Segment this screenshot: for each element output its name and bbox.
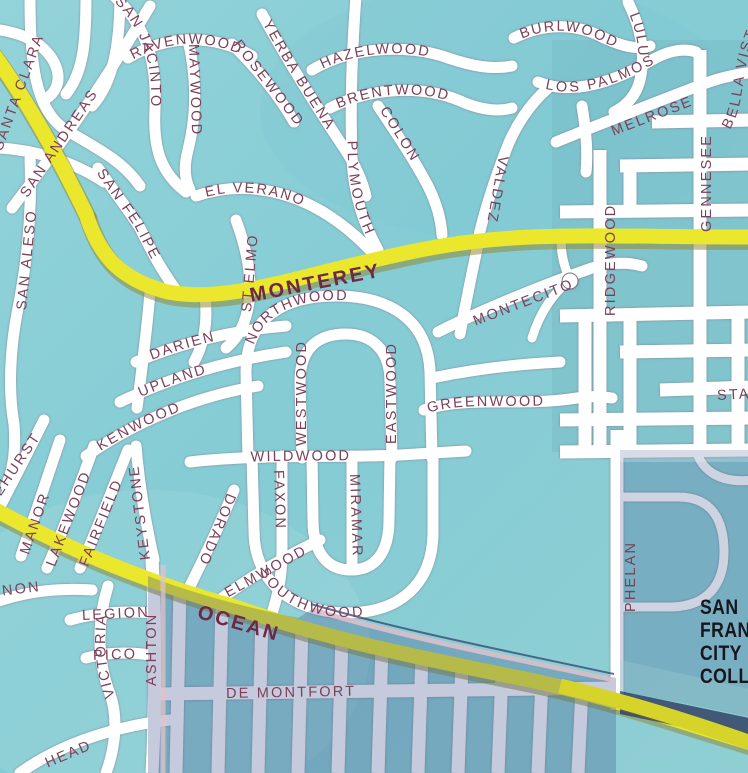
street-label-gennessee: GENNESEE — [699, 134, 715, 232]
street-label-faxon: FAXON — [270, 470, 288, 531]
street-label-phelan: PHELAN — [623, 541, 639, 612]
map-canvas: SANTA CLARA SAN JACINTO RAVENWOOD MAYWOO… — [0, 0, 748, 773]
city-college-top-highlight — [620, 450, 748, 462]
sf-neighborhood-map: SANTA CLARA SAN JACINTO RAVENWOOD MAYWOO… — [0, 0, 748, 773]
street-label-maywood: MAYWOOD — [185, 44, 204, 137]
college-line-1: SAN — [700, 596, 738, 620]
street-label-de-montfort: DE MONTFORT — [226, 684, 357, 702]
college-line-2: FRANCISCO — [700, 619, 748, 643]
college-line-3: CITY — [700, 642, 742, 666]
street-label-eastwood: EASTWOOD — [384, 342, 400, 444]
street-label-wildwood: WILDWOOD — [250, 448, 351, 465]
street-label-ridgewood: RIDGEWOOD — [603, 204, 619, 316]
street-label-stanley: STANLEY — [717, 384, 748, 404]
college-line-4: COLLEGE — [700, 665, 748, 689]
street-label-ashton: ASHTON — [144, 613, 160, 686]
street-label-miramar: MIRAMAR — [346, 474, 365, 558]
street-label-westwood: WESTWOOD — [294, 340, 310, 446]
